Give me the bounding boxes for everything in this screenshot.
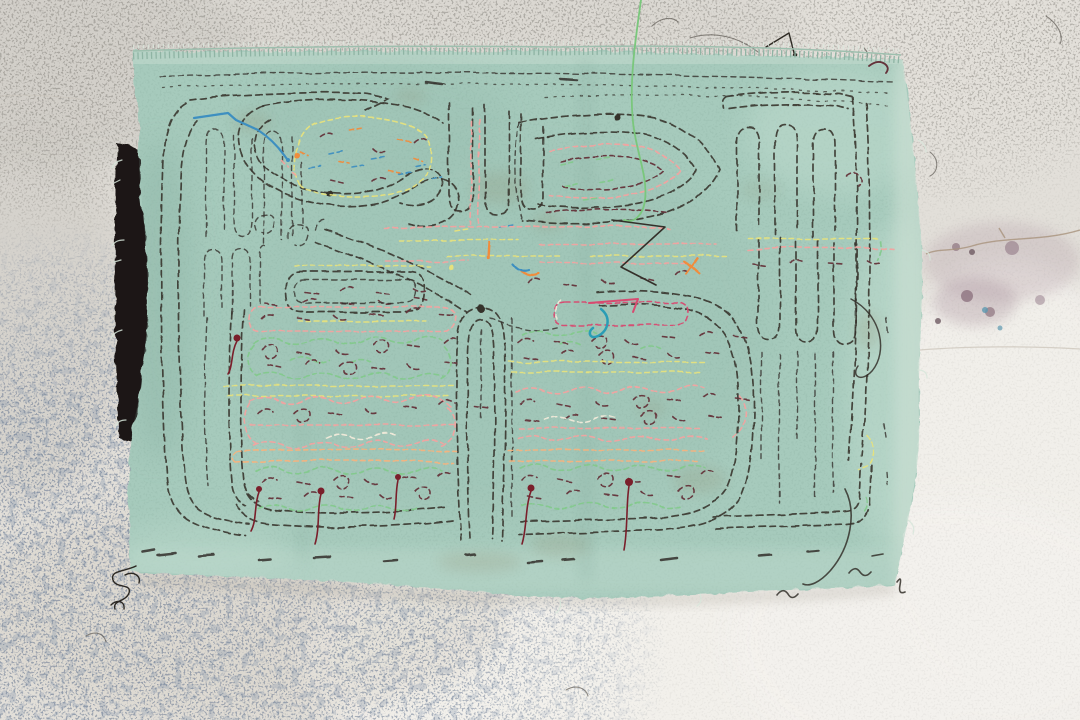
photo-stage: Reverse side of a hand-stitched mola-sty… (0, 0, 1080, 720)
paint-fleck-blue (982, 307, 988, 313)
stain-patch (933, 278, 1017, 326)
dark-red-knot (256, 486, 262, 492)
stain-spot (935, 318, 941, 324)
photo (0, 0, 1080, 720)
blue-thread-end (286, 158, 290, 162)
dark-red-knot (625, 478, 633, 486)
yellow-knot (450, 265, 455, 270)
stain-spot (961, 290, 973, 302)
stain-spot (969, 249, 975, 255)
black-knot (477, 305, 485, 313)
textile-panel (110, 40, 943, 613)
black-knot (614, 114, 620, 120)
fabric-crease (580, 60, 592, 580)
dark-red-knot (395, 474, 401, 480)
stain-spot (1005, 241, 1019, 255)
orange-thread-tick (488, 243, 489, 258)
paint-fleck-blue (998, 326, 1003, 331)
orange-knot (294, 152, 300, 158)
stain-spot (1035, 295, 1045, 305)
